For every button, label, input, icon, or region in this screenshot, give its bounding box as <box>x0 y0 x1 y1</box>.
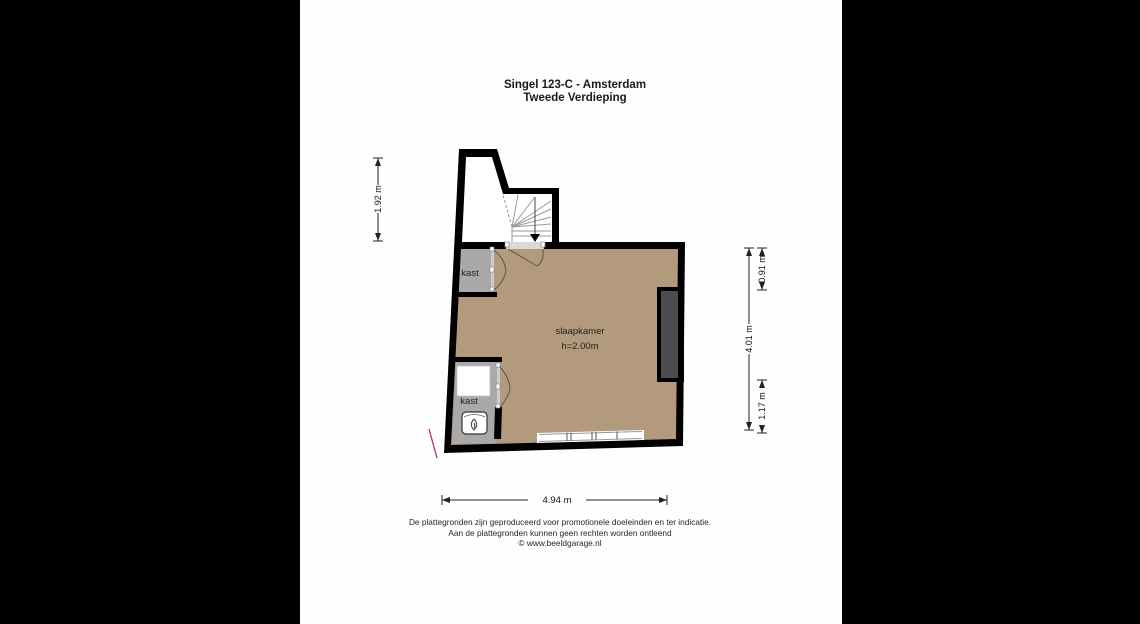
hinge-square <box>496 363 500 367</box>
hinge-square <box>490 267 494 272</box>
page-title: Singel 123-C - Amsterdam Tweede Verdiepi… <box>504 79 646 104</box>
dim-left-label: 1.92 m <box>373 185 383 213</box>
hinge-square <box>490 287 494 291</box>
footer-line2: Aan de plattegronden kunnen geen rechten… <box>448 528 672 538</box>
closet-upper-bottom-wall <box>457 292 497 297</box>
dim-right-lower-label: 1.17 m <box>757 392 767 420</box>
title-line2: Tweede Verdieping <box>523 92 626 104</box>
hinge-square <box>496 404 500 408</box>
hinge-square <box>490 247 494 251</box>
hinge-square <box>541 242 545 247</box>
closet-upper-label: kast <box>461 268 479 279</box>
water-heater <box>462 412 487 434</box>
title-line1: Singel 123-C - Amsterdam <box>504 79 646 91</box>
chimney-breast <box>657 287 684 382</box>
cabinet-box <box>457 366 490 396</box>
dim-bottom-label: 4.94 m <box>542 495 571 506</box>
footer-copyright: © www.beeldgarage.nl <box>518 538 601 548</box>
closet-lower-label: kast <box>460 396 478 407</box>
hinge-square <box>496 384 500 389</box>
footer-line1: De plattegronden zijn geproduceerd voor … <box>409 517 711 527</box>
floorplan-image: Singel 123-C - Amsterdam Tweede Verdiepi… <box>0 0 1140 624</box>
closet-lower-right-wall <box>494 407 502 439</box>
bedroom-height-label: h=2.00m <box>561 341 598 352</box>
screenshot-stage: Singel 123-C - Amsterdam Tweede Verdiepi… <box>0 0 1140 624</box>
dim-right-upper-label: 0.91 m <box>757 255 767 283</box>
stair-door-threshold <box>506 242 544 249</box>
dim-right-total-label: 4.01 m <box>744 325 754 353</box>
chimney-fill <box>661 291 678 378</box>
hinge-square <box>505 242 509 247</box>
closet-lower-top-wall <box>454 357 502 362</box>
bedroom-label: slaapkamer <box>555 326 604 337</box>
